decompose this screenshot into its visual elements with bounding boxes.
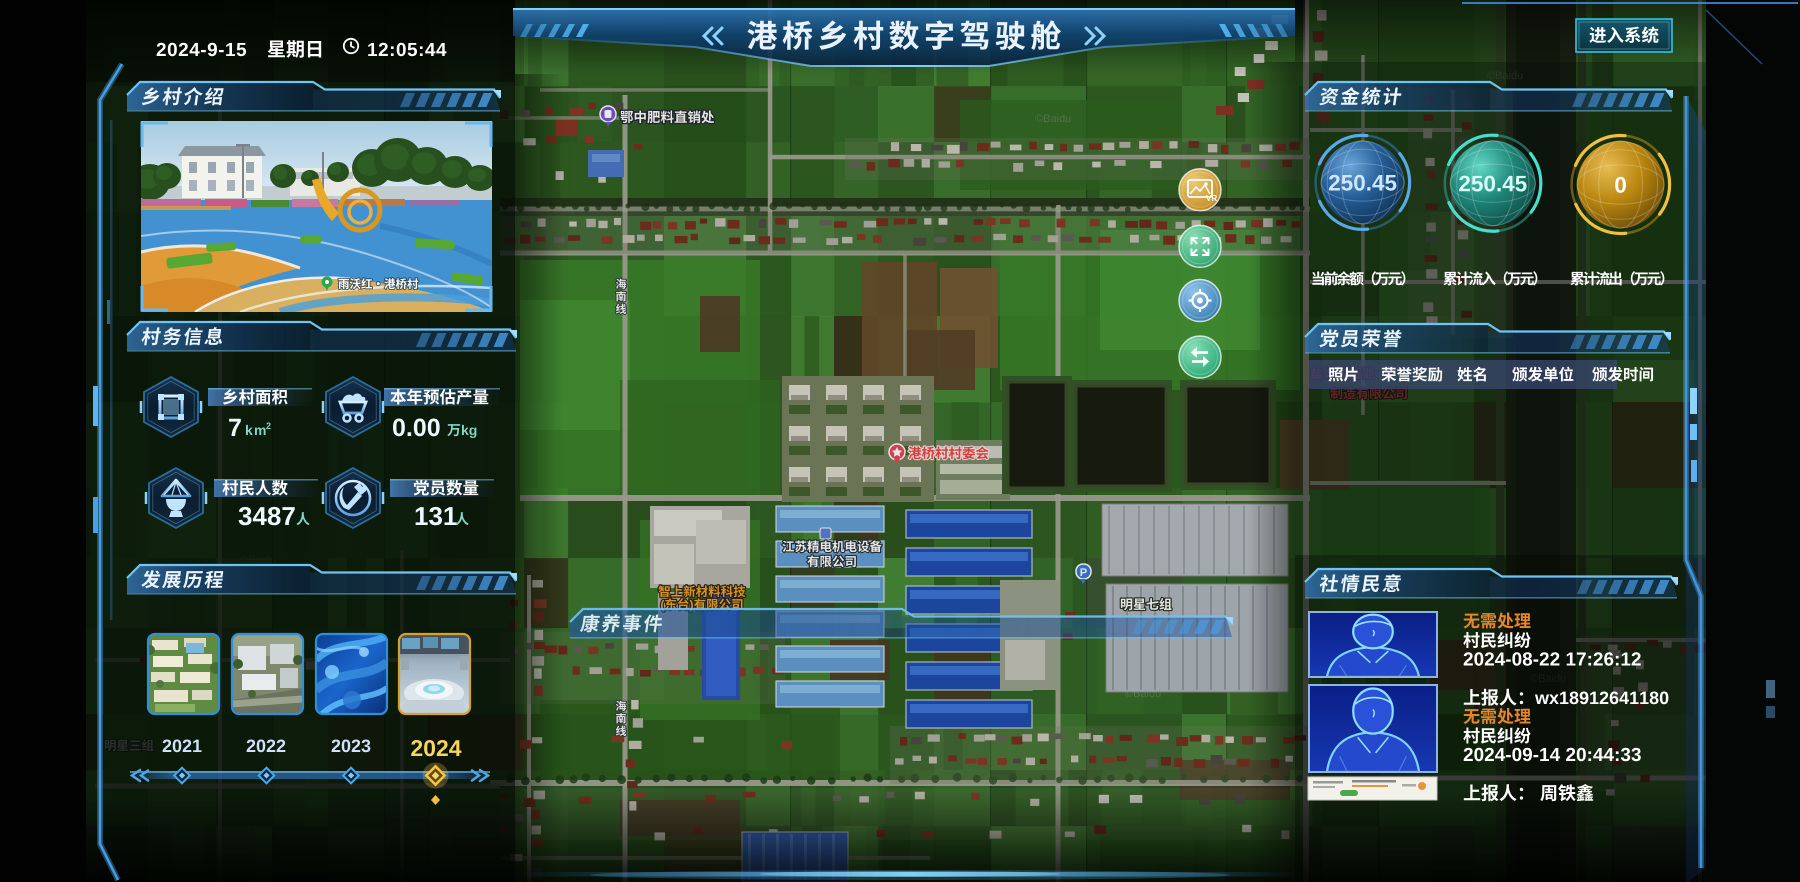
svg-text:VR: VR xyxy=(1206,194,1217,203)
svg-text:2: 2 xyxy=(266,421,271,431)
